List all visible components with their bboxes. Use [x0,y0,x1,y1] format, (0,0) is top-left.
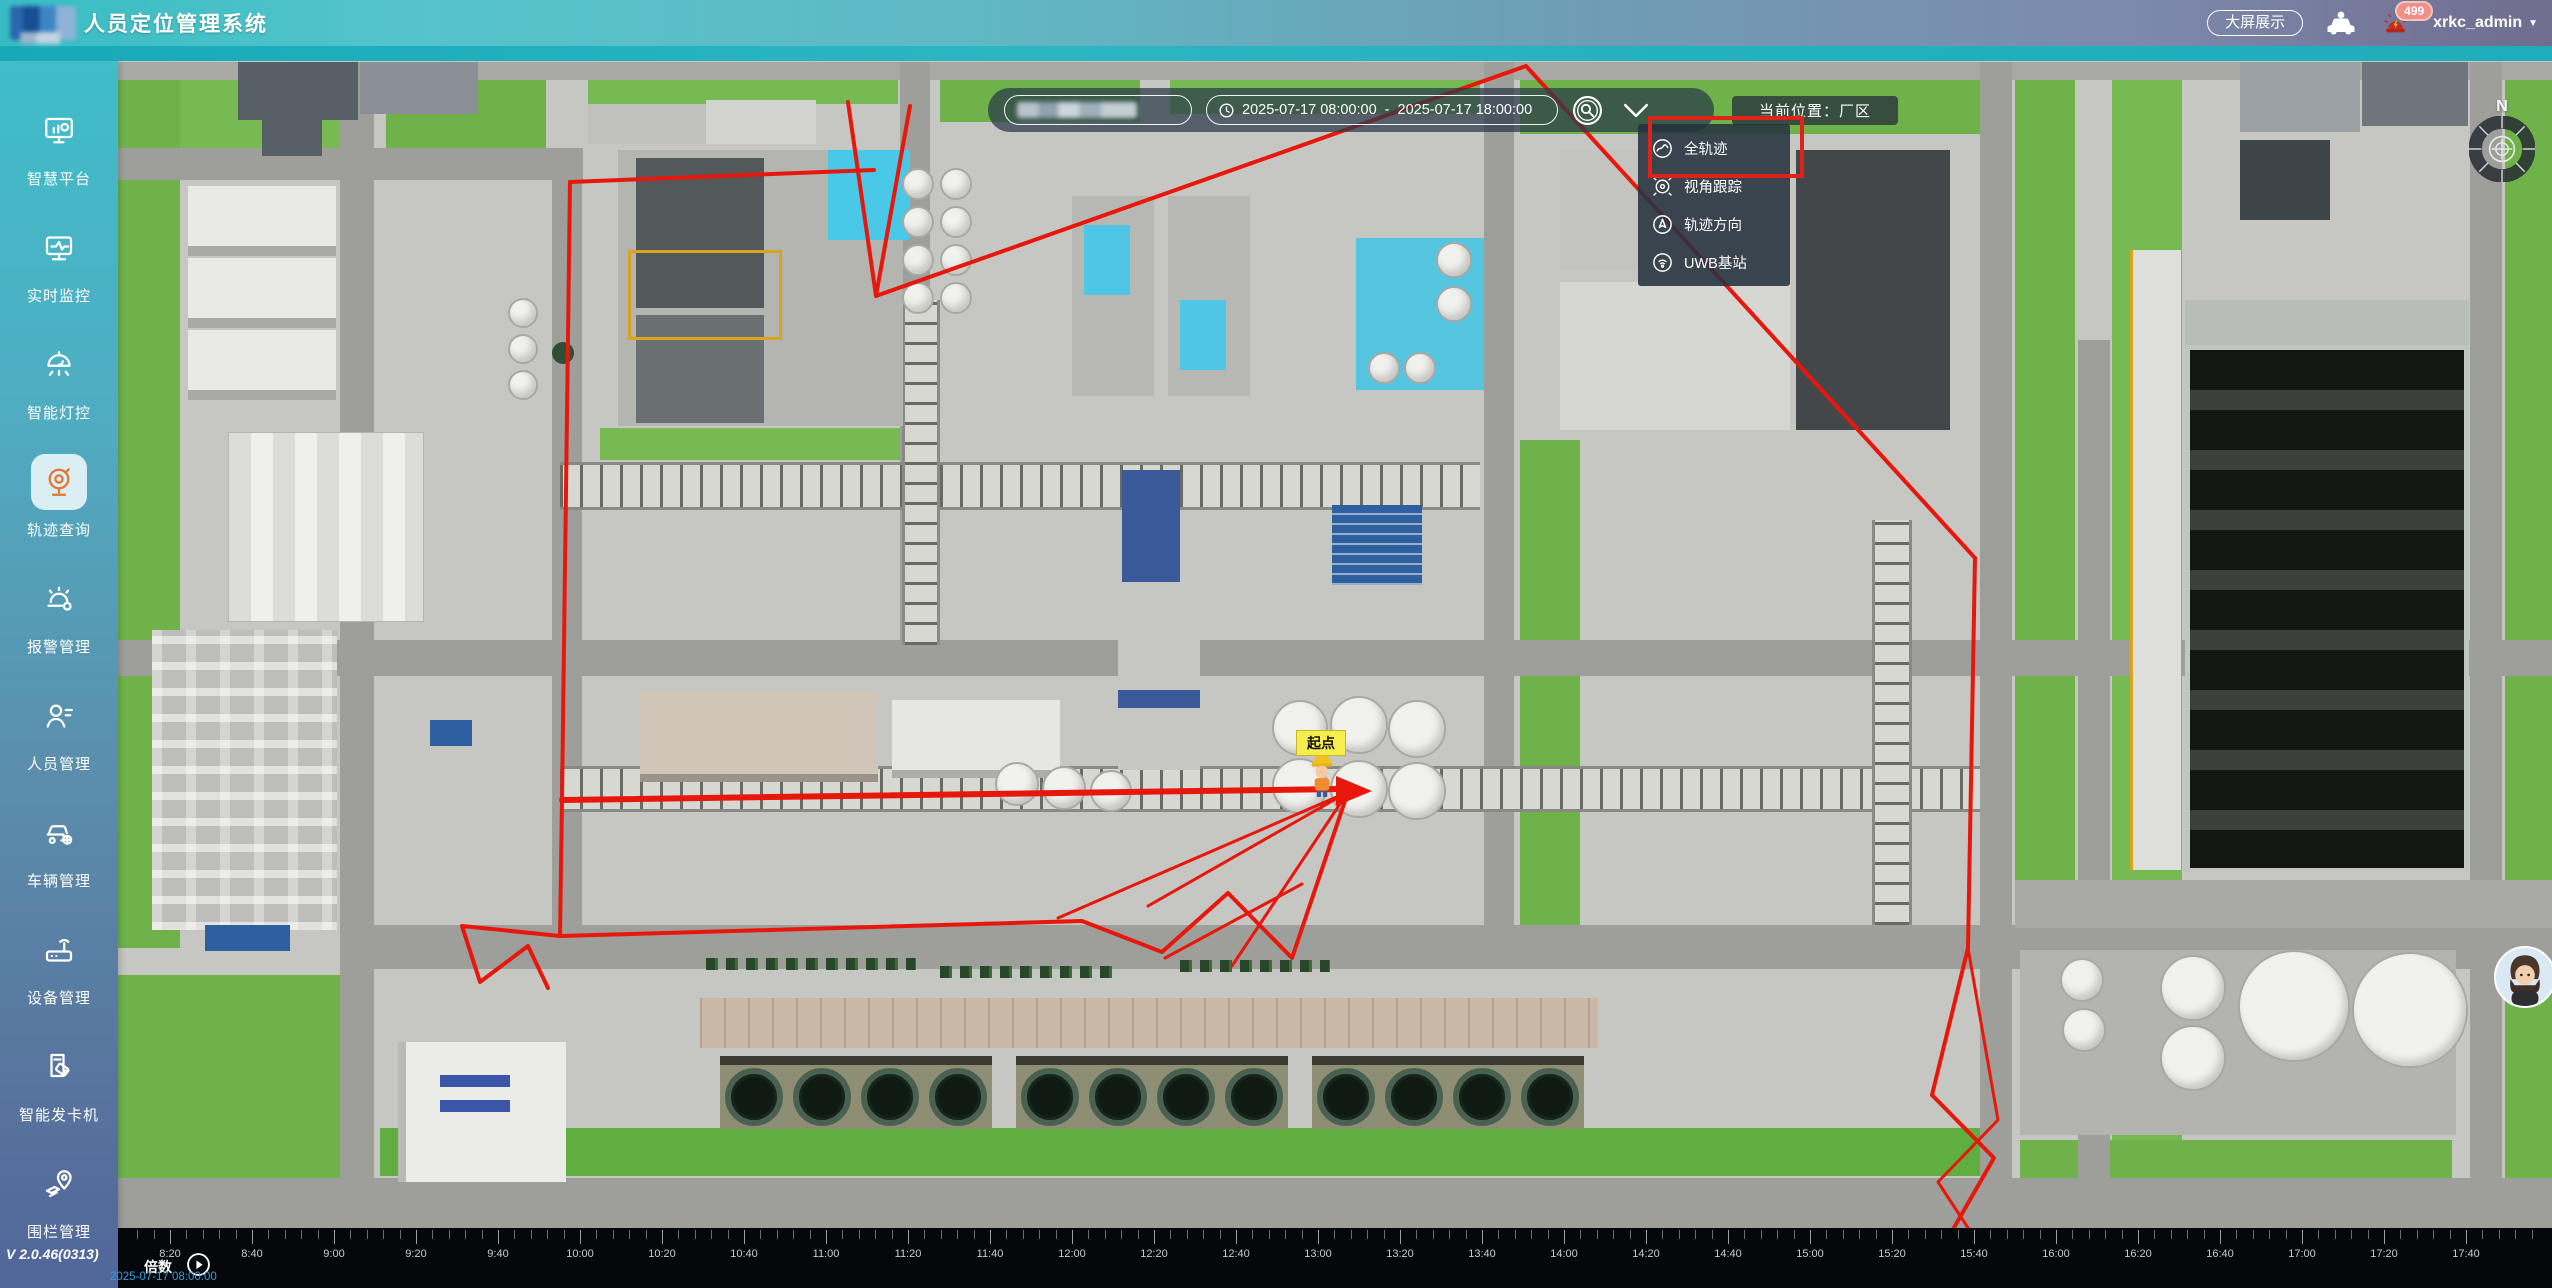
timeline-tick-label: 10:00 [566,1248,594,1260]
dropdown-item-label: 轨迹方向 [1684,214,1742,235]
map-structure [118,148,583,180]
map-structure [2240,62,2360,132]
dropdown-item-label: UWB基站 [1684,252,1747,273]
map-structure [118,62,2552,80]
sidebar-item-smart-light[interactable]: 智能灯控 [0,321,118,438]
map-structure [706,958,916,970]
map-structure [1122,470,1180,582]
sidebar-item-label: 智能发卡机 [19,1104,99,1125]
compass-icon[interactable] [2469,116,2535,182]
map-structure [508,370,538,400]
smart-platform-icon [31,103,87,159]
username: xrkc_admin [2433,14,2522,32]
timeline-tick-label: 15:40 [1960,1248,1988,1260]
map-structure [430,720,472,746]
map-structure [2062,1008,2106,1052]
sidebar-item-label: 报警管理 [27,636,91,657]
app-header: 人员定位管理系统 大屏展示 499 [0,0,2552,46]
timeline-tick-label: 15:00 [1796,1248,1824,1260]
version-label: V 2.0.46(0313) [6,1246,99,1262]
chevron-down-icon: ▼ [2528,18,2538,29]
sidebar-item-realtime-monitor[interactable]: 实时监控 [0,204,118,321]
map-structure [1180,300,1226,370]
sidebar-item-personnel-mgmt[interactable]: 人员管理 [0,672,118,789]
map-structure [700,998,1598,1048]
alarm-mgmt-icon [31,571,87,627]
map-structure [1225,1068,1283,1126]
map-structure [995,762,1039,806]
map-structure [2160,955,2226,1021]
timeline-tick-label: 15:20 [1878,1248,1906,1260]
map-structure [1084,225,1130,295]
map-structure [205,925,290,951]
map-structure [929,1068,987,1126]
fence-mgmt-icon [31,1156,87,1212]
map-structure [902,282,934,314]
map-structure [940,966,1120,978]
map-structure [793,1068,851,1126]
map-structure [552,150,582,940]
timeline-tick-label: 9:40 [487,1248,508,1260]
map-structure [1521,1068,1579,1126]
map-structure [1872,520,1912,925]
map-structure [902,244,934,276]
sidebar-item-label: 实时监控 [27,285,91,306]
map-structure [640,692,878,782]
card-dispenser-icon [31,1039,87,1095]
timeline-tick-label: 14:20 [1632,1248,1660,1260]
dropdown-item-track-direction[interactable]: 轨迹方向 [1638,205,1790,243]
map-structure [706,100,816,144]
date-range-picker[interactable]: 2025-07-17 08:00:00 - 2025-07-17 18:00:0… [1206,95,1558,125]
map-structure [398,1042,566,1182]
alarm-count-badge: 499 [2395,1,2433,21]
map-structure [600,428,900,460]
map-structure [1016,1056,1288,1129]
sidebar-item-label: 围栏管理 [27,1221,91,1242]
map-structure [902,168,934,200]
timeline-tick-label: 17:20 [2370,1248,2398,1260]
map-structure [188,330,336,400]
map-structure [1089,1068,1147,1126]
user-menu[interactable]: xrkc_admin ▼ [2433,14,2538,32]
map-structure [1436,242,1472,278]
map-structure [2352,952,2468,1068]
date-start[interactable]: 2025-07-17 08:00:00 [1242,102,1377,118]
map-structure [1388,762,1446,820]
sidebar-item-label: 车辆管理 [27,870,91,891]
map-structure [1436,286,1472,322]
map-structure [940,282,972,314]
track-direction-icon [1650,212,1674,236]
timeline-tick-label: 8:40 [241,1248,262,1260]
map-structure [2060,958,2104,1002]
map-toolbar: 2025-07-17 08:00:00 - 2025-07-17 18:00:0… [988,88,1714,132]
map-structure [940,168,972,200]
date-separator: - [1385,102,1390,118]
compass-north-label: N [2468,98,2536,116]
track-search-button[interactable] [1572,95,1603,126]
worker-marker-icon[interactable] [1308,752,1336,798]
sidebar-item-device-mgmt[interactable]: 设备管理 [0,906,118,1023]
track-options-dropdown: 全轨迹视角跟踪轨迹方向UWB基站 [1638,124,1790,286]
sidebar-item-label: 智能灯控 [27,402,91,423]
map-structure [902,300,940,645]
map-structure [1042,766,1086,810]
map-structure [2015,62,2075,938]
current-playback-time: 2025-07-17 08:00:00 [110,1271,217,1283]
big-screen-button[interactable]: 大屏展示 [2207,10,2303,36]
map-structure [262,120,322,156]
sidebar-item-alarm-mgmt[interactable]: 报警管理 [0,555,118,672]
dropdown-item-label: 视角跟踪 [1684,176,1742,197]
map-structure [1796,150,1950,430]
map-structure [1021,1068,1079,1126]
app-title: 人员定位管理系统 [84,8,268,38]
map-structure [1317,1068,1375,1126]
map-structure [188,186,336,256]
map-structure [2362,62,2468,126]
playback-timeline[interactable]: 8:208:409:009:209:4010:0010:2010:4011:00… [118,1228,2552,1288]
timeline-tick-label: 16:40 [2206,1248,2234,1260]
map-structure [188,258,336,328]
current-location-label: 当前位置：厂区 [1732,96,1898,125]
timeline-tick-label: 16:00 [2042,1248,2070,1260]
timeline-tick-label: 14:00 [1550,1248,1578,1260]
timeline-tick-label: 13:00 [1304,1248,1332,1260]
timeline-tick-label: 10:40 [730,1248,758,1260]
timeline-tick-label: 12:40 [1222,1248,1250,1260]
clock-icon [1219,103,1234,118]
timeline-tick-label: 14:40 [1714,1248,1742,1260]
map-structure [1312,1056,1584,1129]
map-structure [1520,440,1580,930]
timeline-tick-label: 11:40 [977,1248,1004,1260]
redacted-person-name [1017,102,1137,118]
compass-control[interactable]: N [2468,98,2536,187]
map-structure [1090,770,1132,812]
map-structure [2160,1025,2226,1091]
map-structure [2015,880,2552,928]
map-structure [1180,960,1330,972]
map-structure [1385,1068,1443,1126]
map-structure [1560,282,1790,430]
app-logo-sub [20,32,60,44]
map-structure [902,206,934,238]
map-structure [2240,140,2330,220]
smart-light-icon [31,337,87,393]
sidebar-item-smart-platform[interactable]: 智慧平台 [0,87,118,204]
sidebar-item-label: 人员管理 [27,753,91,774]
timeline-tick-label: 13:40 [1468,1248,1496,1260]
map-structure [118,1178,2552,1228]
map-structure [1404,352,1436,384]
map-structure [2185,300,2469,348]
map-structure [861,1068,919,1126]
sidebar-item-fence-mgmt[interactable]: 围栏管理 [0,1140,118,1257]
map-structure [440,1100,510,1112]
map-structure [720,1056,992,1129]
map-structure [1332,505,1422,585]
map-structure [380,1128,1980,1176]
map-structure [940,244,972,276]
sidebar-item-vehicle-mgmt[interactable]: 车辆管理 [0,789,118,906]
map-structure [892,700,1060,778]
map-viewport[interactable]: 起点 [0,0,2552,1288]
map-structure [628,250,782,340]
track-query-icon [31,454,87,510]
map-structure [508,298,538,328]
map-structure [238,62,358,120]
timeline-tick-label: 13:20 [1386,1248,1414,1260]
timeline-tick-label: 11:00 [813,1248,840,1260]
map-structure [725,1068,783,1126]
dropdown-item-full-track[interactable]: 全轨迹 [1638,129,1790,167]
sidebar-item-label: 智慧平台 [27,168,91,189]
header-accent-strip [0,46,2552,61]
timeline-tick-label: 12:00 [1058,1248,1086,1260]
sidebar-item-card-dispenser[interactable]: 智能发卡机 [0,1023,118,1140]
sidebar-item-label: 轨迹查询 [27,519,91,540]
map-structure [940,206,972,238]
map-structure [2238,950,2350,1062]
dropdown-item-label: 全轨迹 [1684,138,1728,159]
sidebar-nav: 智慧平台实时监控智能灯控轨迹查询报警管理人员管理车辆管理设备管理智能发卡机围栏管… [0,61,118,1257]
uwb-station-icon [1650,250,1674,274]
timeline-tick-label: 9:00 [323,1248,344,1260]
vehicle-icon[interactable] [2325,8,2357,38]
map-structure [588,104,708,144]
map-structure [508,334,538,364]
vehicle-mgmt-icon [31,805,87,861]
map-structure [560,462,1480,510]
track-options-chevron[interactable] [1623,103,1649,118]
map-structure [552,342,574,364]
map-structure [1388,700,1446,758]
map-structure [1118,690,1200,708]
view-follow-icon [1650,174,1674,198]
timeline-tick-label: 17:00 [2288,1248,2316,1260]
map-structure [228,432,424,622]
realtime-monitor-icon [31,220,87,276]
alarm-siren-icon[interactable]: 499 [2379,8,2411,38]
sidebar-item-label: 设备管理 [27,987,91,1008]
sidebar: 智慧平台实时监控智能灯控轨迹查询报警管理人员管理车辆管理设备管理智能发卡机围栏管… [0,61,118,1288]
person-search-input[interactable] [1004,95,1192,125]
map-structure [1330,760,1388,818]
personnel-mgmt-icon [31,688,87,744]
timeline-tick-label: 16:20 [2124,1248,2152,1260]
map-structure [360,62,478,114]
map-structure [828,150,910,240]
timeline-tick-label: 17:40 [2452,1248,2480,1260]
map-structure [440,1075,510,1087]
timeline-tick-label: 12:20 [1140,1248,1168,1260]
timeline-tick-label: 11:20 [895,1248,922,1260]
date-end[interactable]: 2025-07-17 18:00:00 [1398,102,1533,118]
map-structure [2185,345,2469,873]
map-structure [152,630,337,930]
timeline-tick-label: 9:20 [405,1248,426,1260]
map-structure [1453,1068,1511,1126]
timeline-tick-label: 10:20 [648,1248,676,1260]
assistant-avatar[interactable] [2494,946,2552,1008]
map-structure [1368,352,1400,384]
full-track-icon [1650,136,1674,160]
sidebar-item-track-query[interactable]: 轨迹查询 [0,438,118,555]
dropdown-item-view-follow[interactable]: 视角跟踪 [1638,167,1790,205]
dropdown-item-uwb-station[interactable]: UWB基站 [1638,243,1790,281]
map-structure [1157,1068,1215,1126]
map-structure [2130,250,2181,870]
device-mgmt-icon [31,922,87,978]
